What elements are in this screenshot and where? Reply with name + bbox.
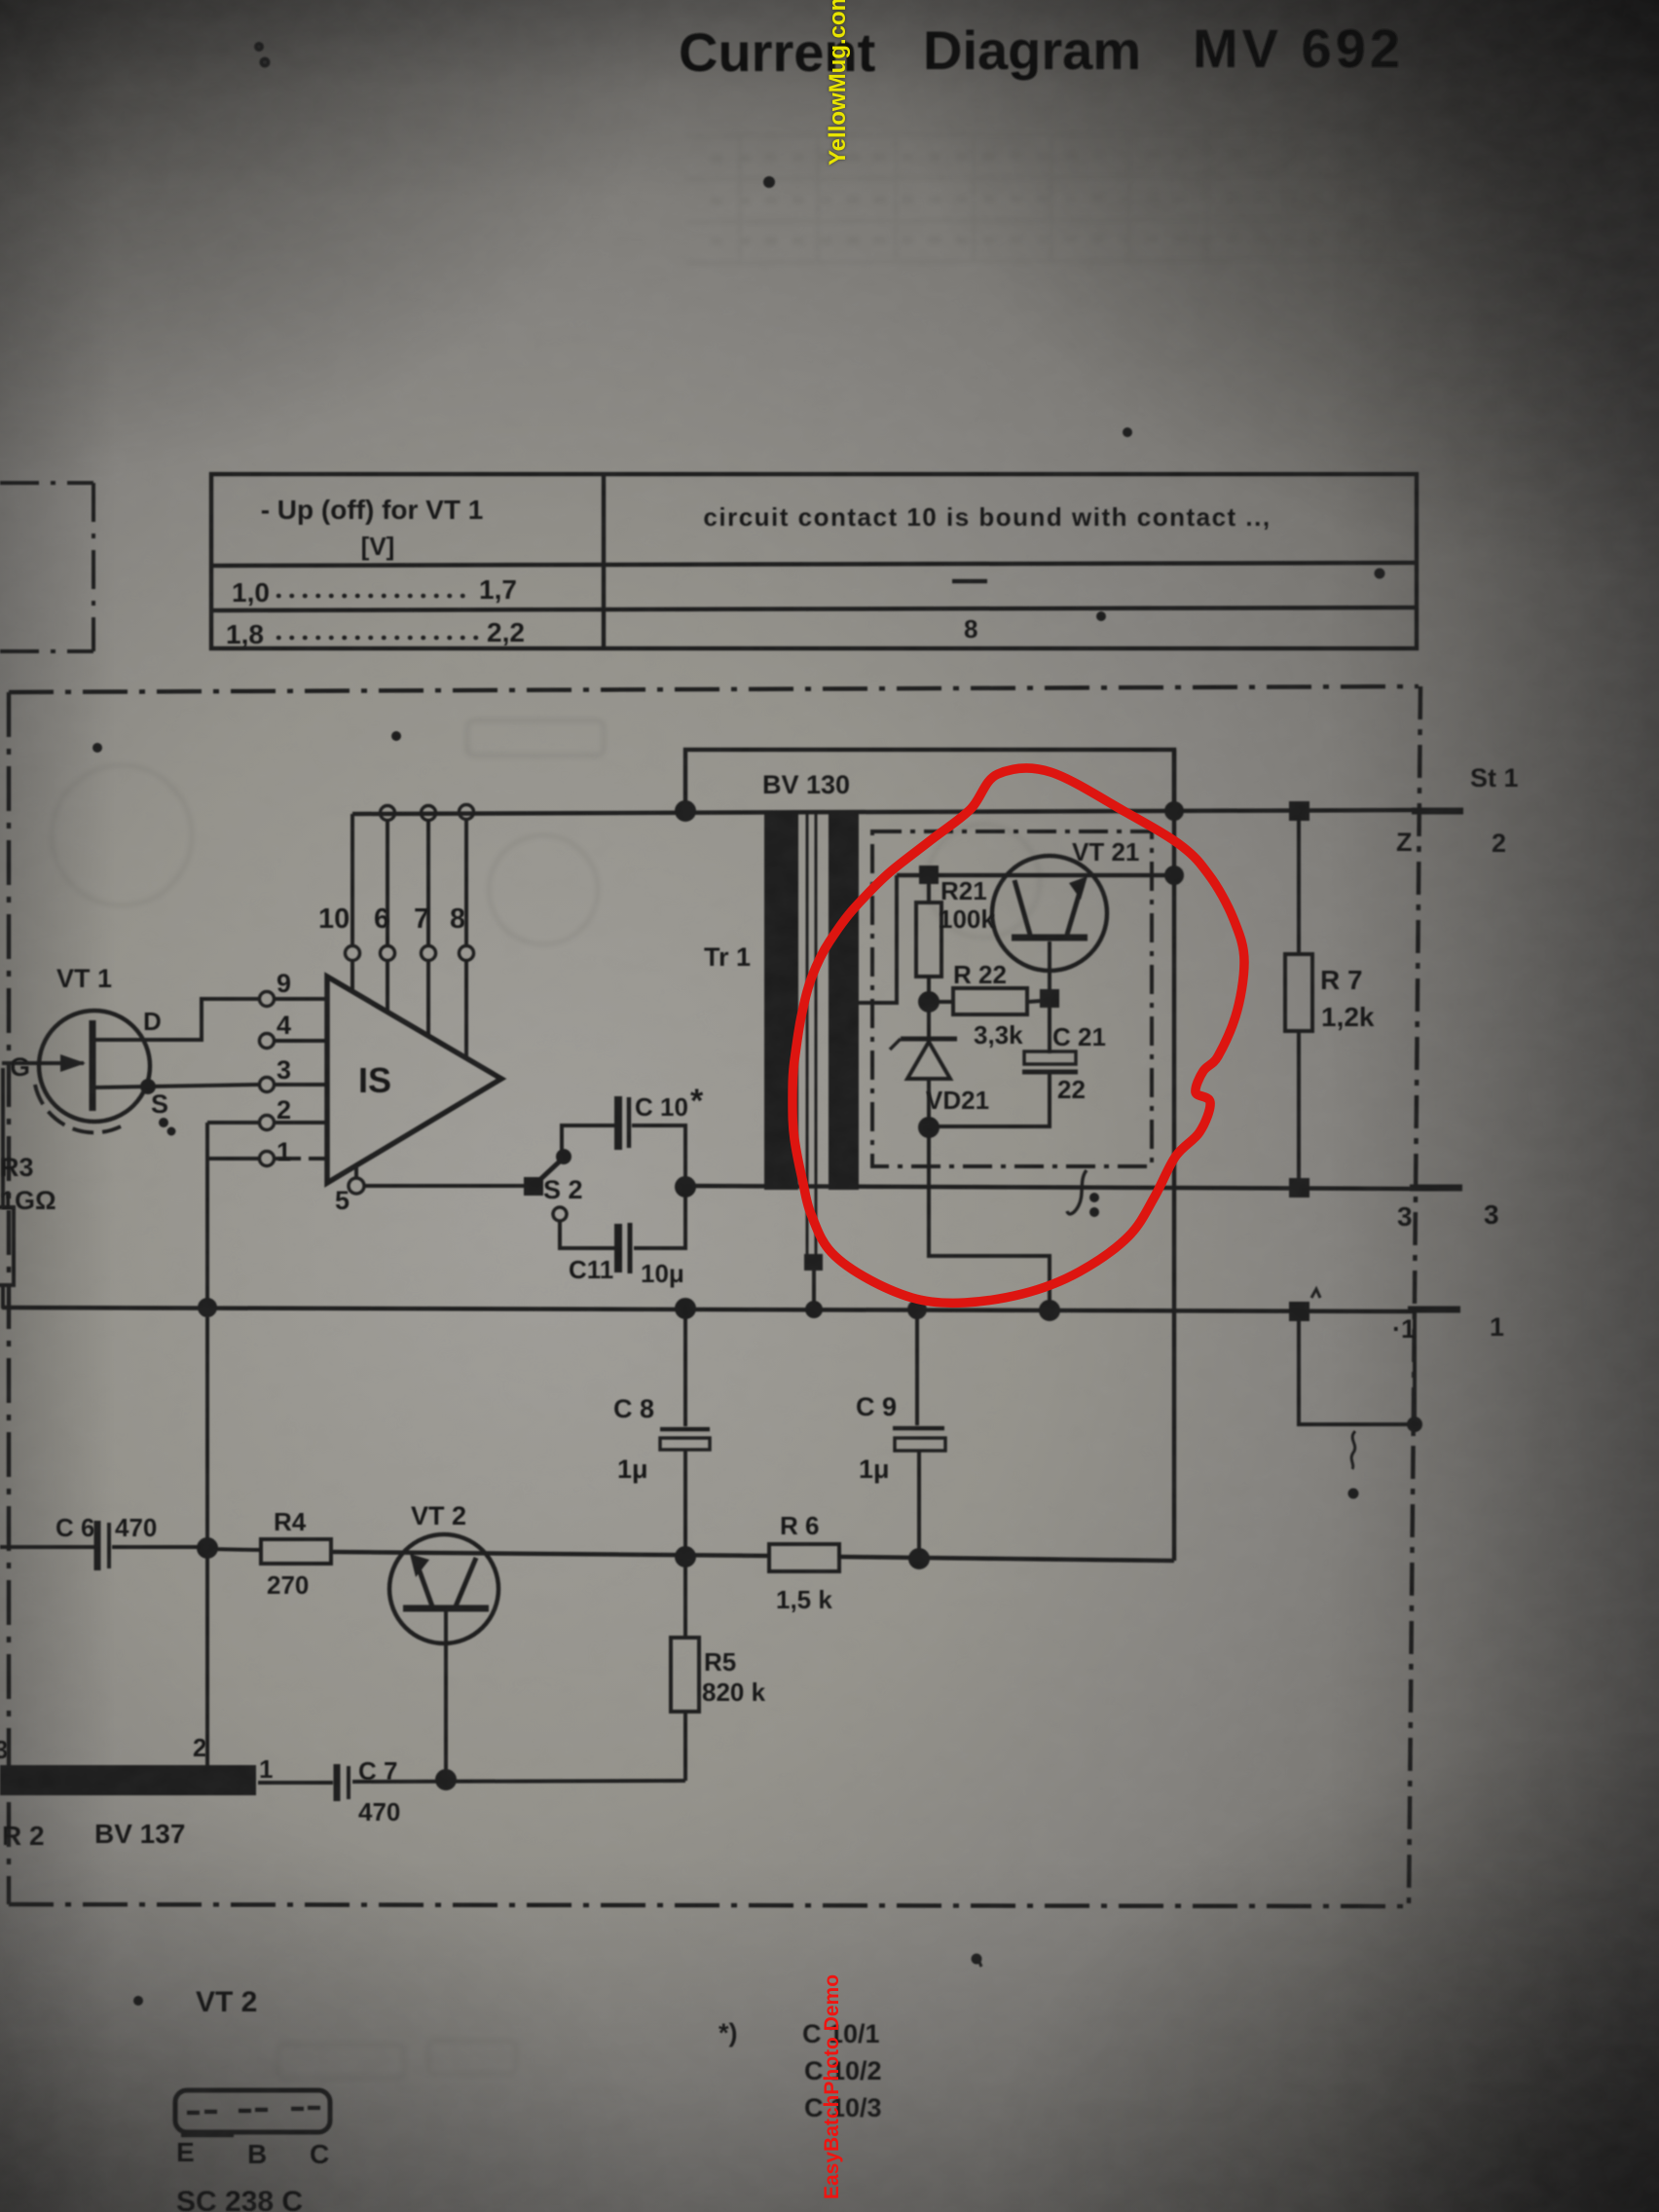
svg-text:YellowMug.com: YellowMug.com <box>825 0 851 166</box>
svg-text:EasyBatchPhoto Demo: EasyBatchPhoto Demo <box>821 1974 843 2199</box>
